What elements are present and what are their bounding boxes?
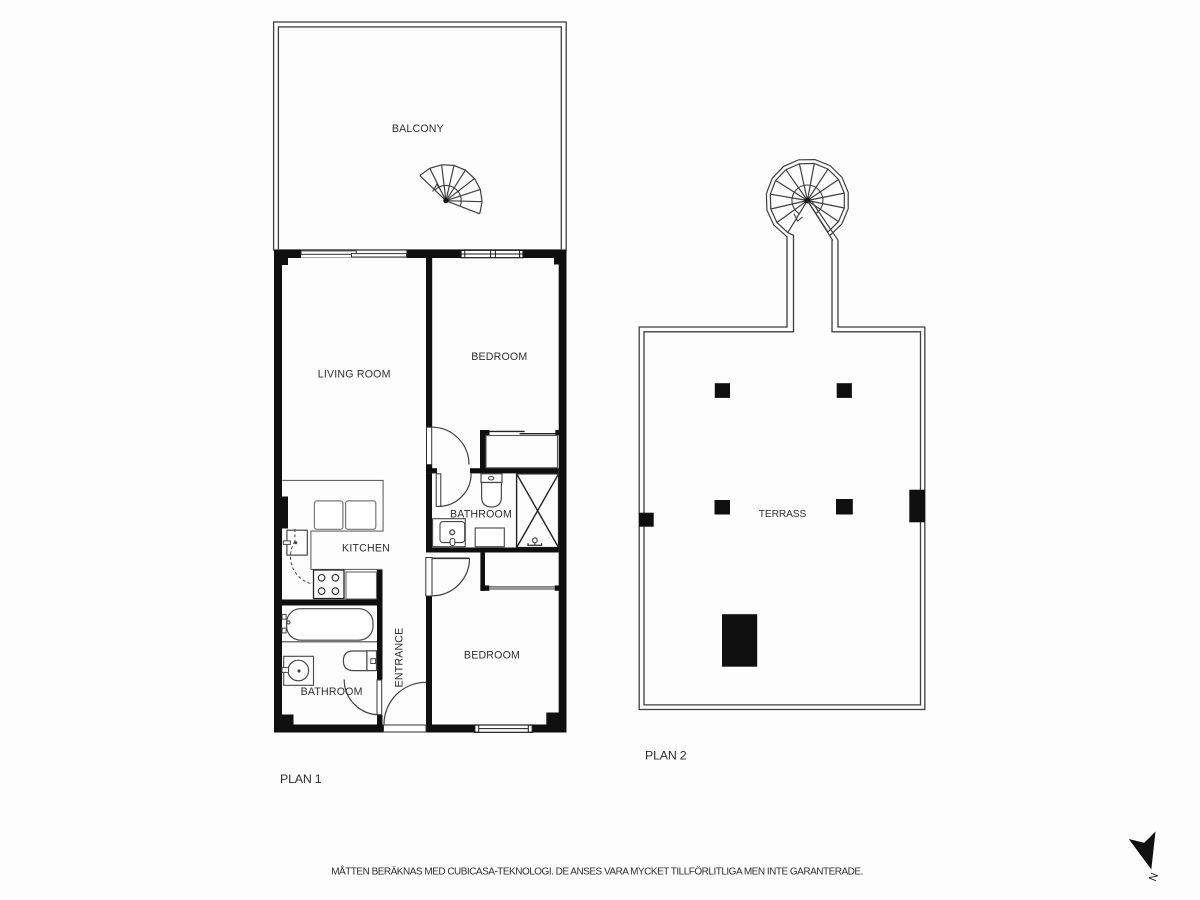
svg-text:TERRASS: TERRASS bbox=[759, 509, 807, 520]
svg-text:BEDROOM: BEDROOM bbox=[471, 351, 527, 363]
svg-text:PLAN 1: PLAN 1 bbox=[280, 772, 322, 786]
svg-text:BALCONY: BALCONY bbox=[392, 123, 444, 135]
svg-text:ENTRANCE: ENTRANCE bbox=[394, 628, 406, 688]
svg-text:PLAN 2: PLAN 2 bbox=[645, 749, 687, 763]
svg-text:BATHROOM: BATHROOM bbox=[301, 686, 363, 698]
svg-text:LIVING ROOM: LIVING ROOM bbox=[318, 368, 391, 380]
svg-text:MÅTTEN BERÄKNAS MED CUBICASA-T: MÅTTEN BERÄKNAS MED CUBICASA-TEKNOLOGI. … bbox=[331, 865, 863, 878]
svg-text:KITCHEN: KITCHEN bbox=[342, 543, 390, 555]
svg-text:BATHROOM: BATHROOM bbox=[450, 509, 512, 521]
svg-text:BEDROOM: BEDROOM bbox=[464, 649, 520, 661]
